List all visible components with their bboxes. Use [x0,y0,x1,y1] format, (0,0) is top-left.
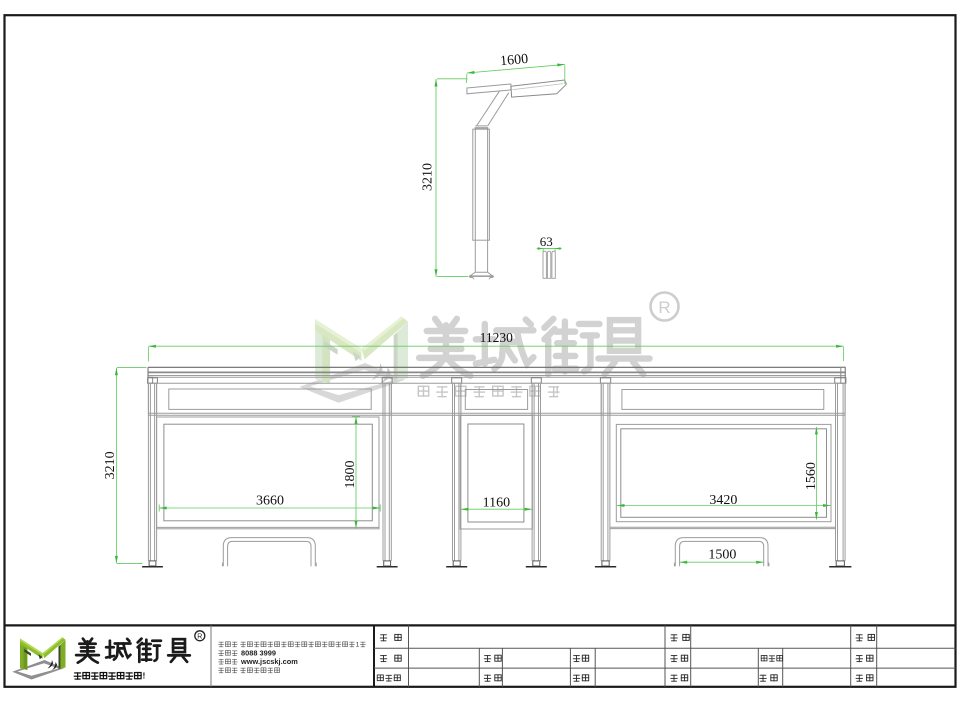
svg-text:1800: 1800 [343,461,358,489]
svg-text:3210: 3210 [420,163,435,191]
svg-text:11230: 11230 [480,330,513,345]
svg-text:R: R [658,298,670,317]
svg-text:1160: 1160 [483,495,510,510]
svg-text:!: ! [555,384,559,401]
svg-text:3660: 3660 [256,493,284,508]
svg-text:!: ! [143,671,146,681]
svg-text:3210: 3210 [103,451,118,479]
svg-text:63: 63 [540,234,553,249]
svg-text:1: 1 [356,642,360,649]
svg-text:3420: 3420 [709,493,737,508]
svg-text:R: R [197,634,202,641]
svg-text:1600: 1600 [500,52,529,69]
svg-text:1560: 1560 [804,462,819,490]
svg-text:1500: 1500 [708,548,736,563]
svg-text:www.jscskj.com: www.jscskj.com [240,657,298,666]
